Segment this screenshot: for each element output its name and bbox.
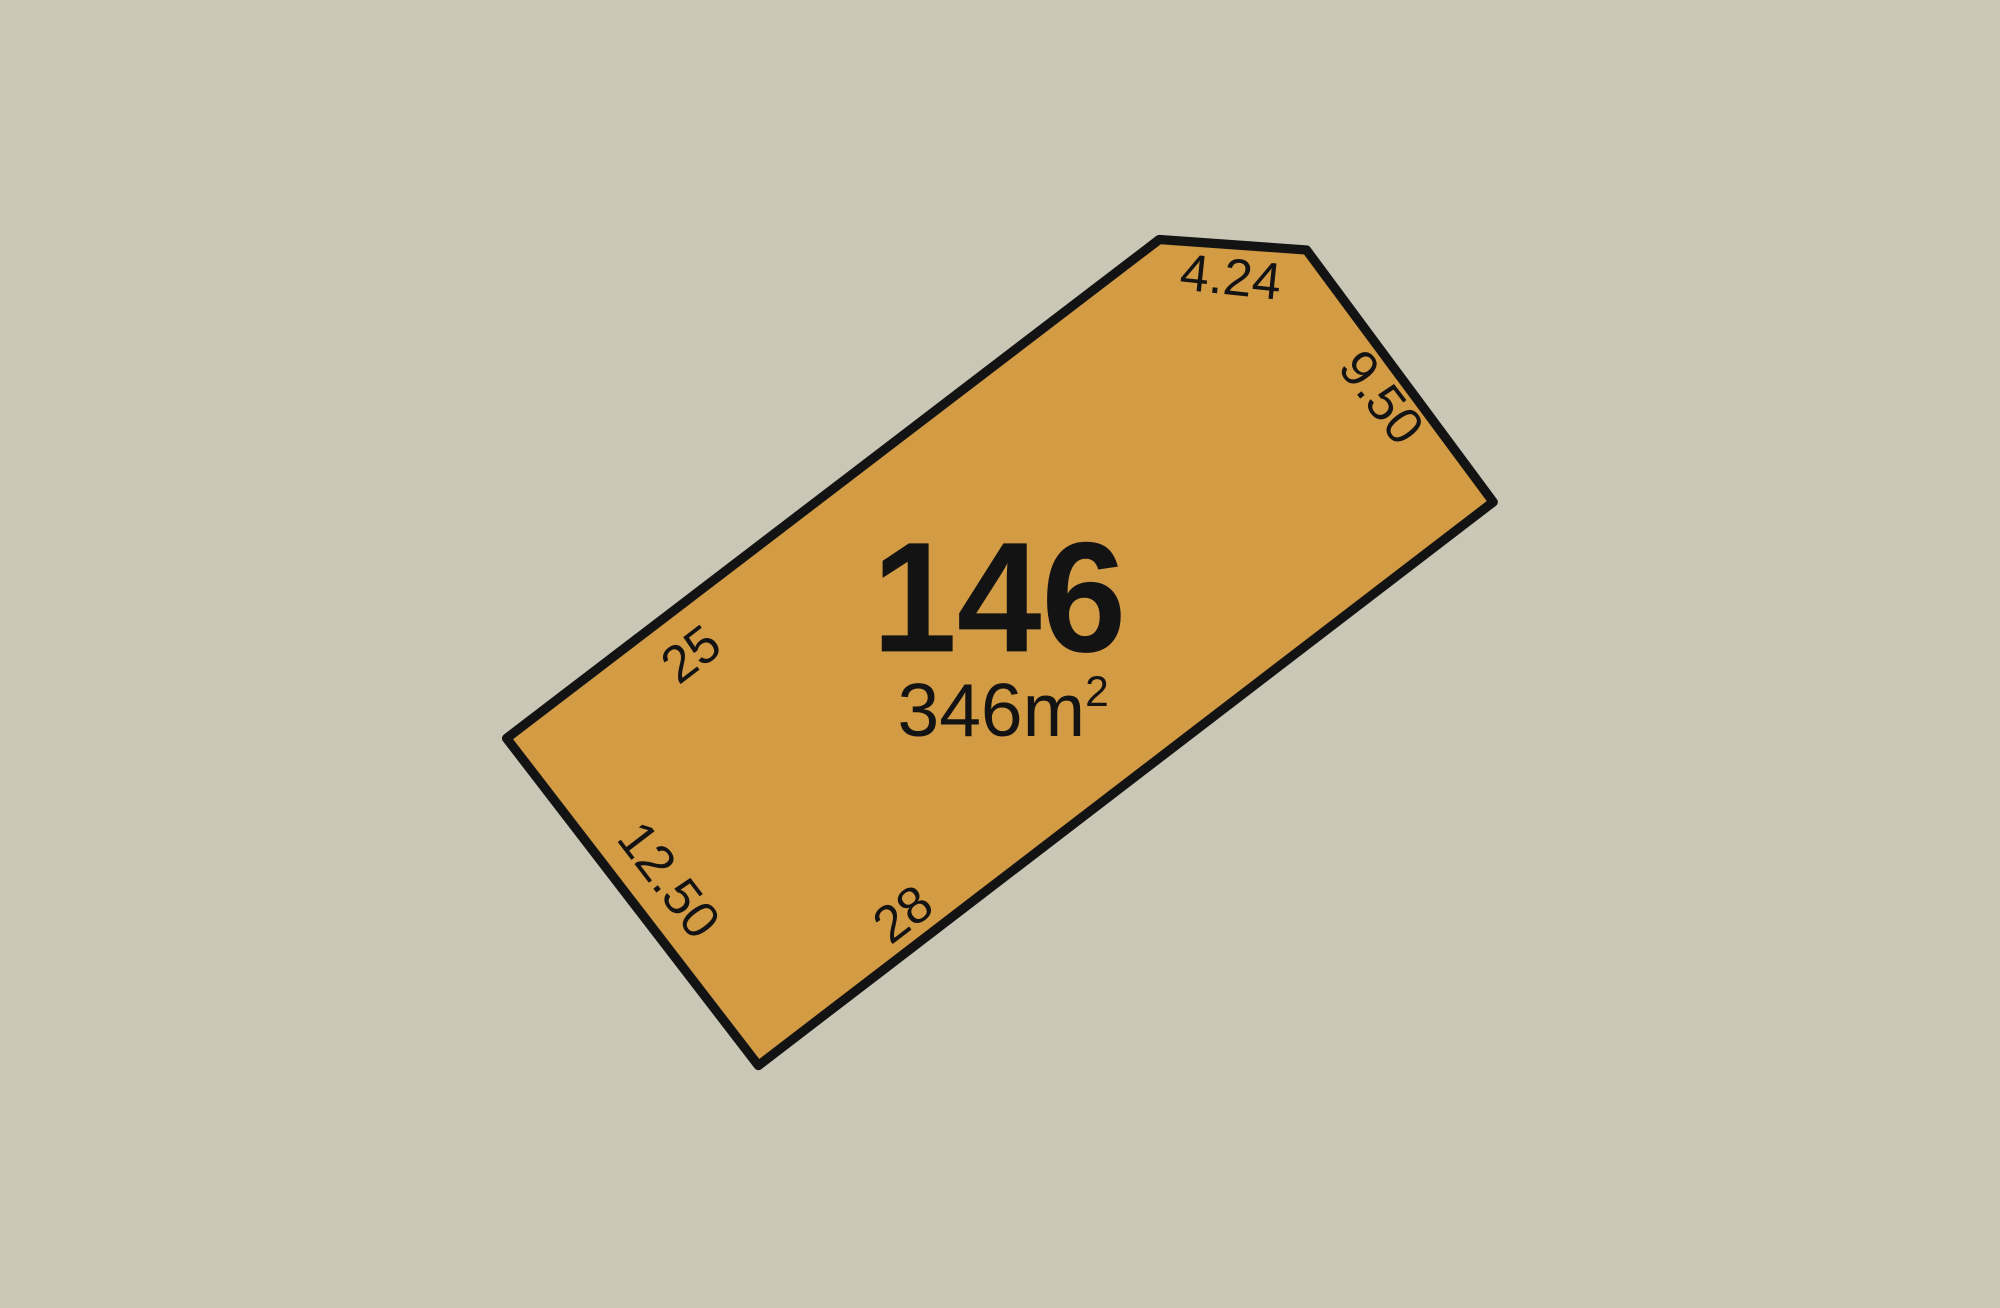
svg-text:4.24: 4.24 <box>1177 243 1284 311</box>
svg-text:146: 146 <box>872 510 1126 685</box>
svg-text:346m2: 346m2 <box>898 668 1109 752</box>
